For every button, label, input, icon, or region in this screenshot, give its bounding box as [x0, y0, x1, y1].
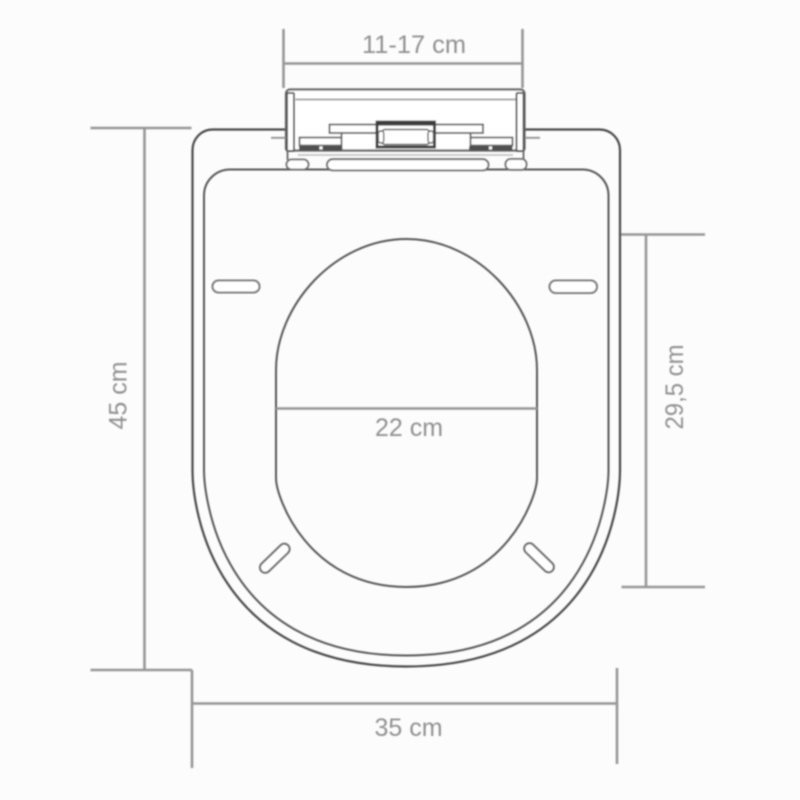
svg-text:22 cm: 22 cm: [375, 414, 443, 442]
svg-text:45 cm: 45 cm: [105, 362, 133, 430]
svg-text:35 cm: 35 cm: [375, 714, 443, 742]
svg-text:11-17 cm: 11-17 cm: [362, 31, 466, 59]
svg-text:29,5 cm: 29,5 cm: [661, 345, 689, 430]
